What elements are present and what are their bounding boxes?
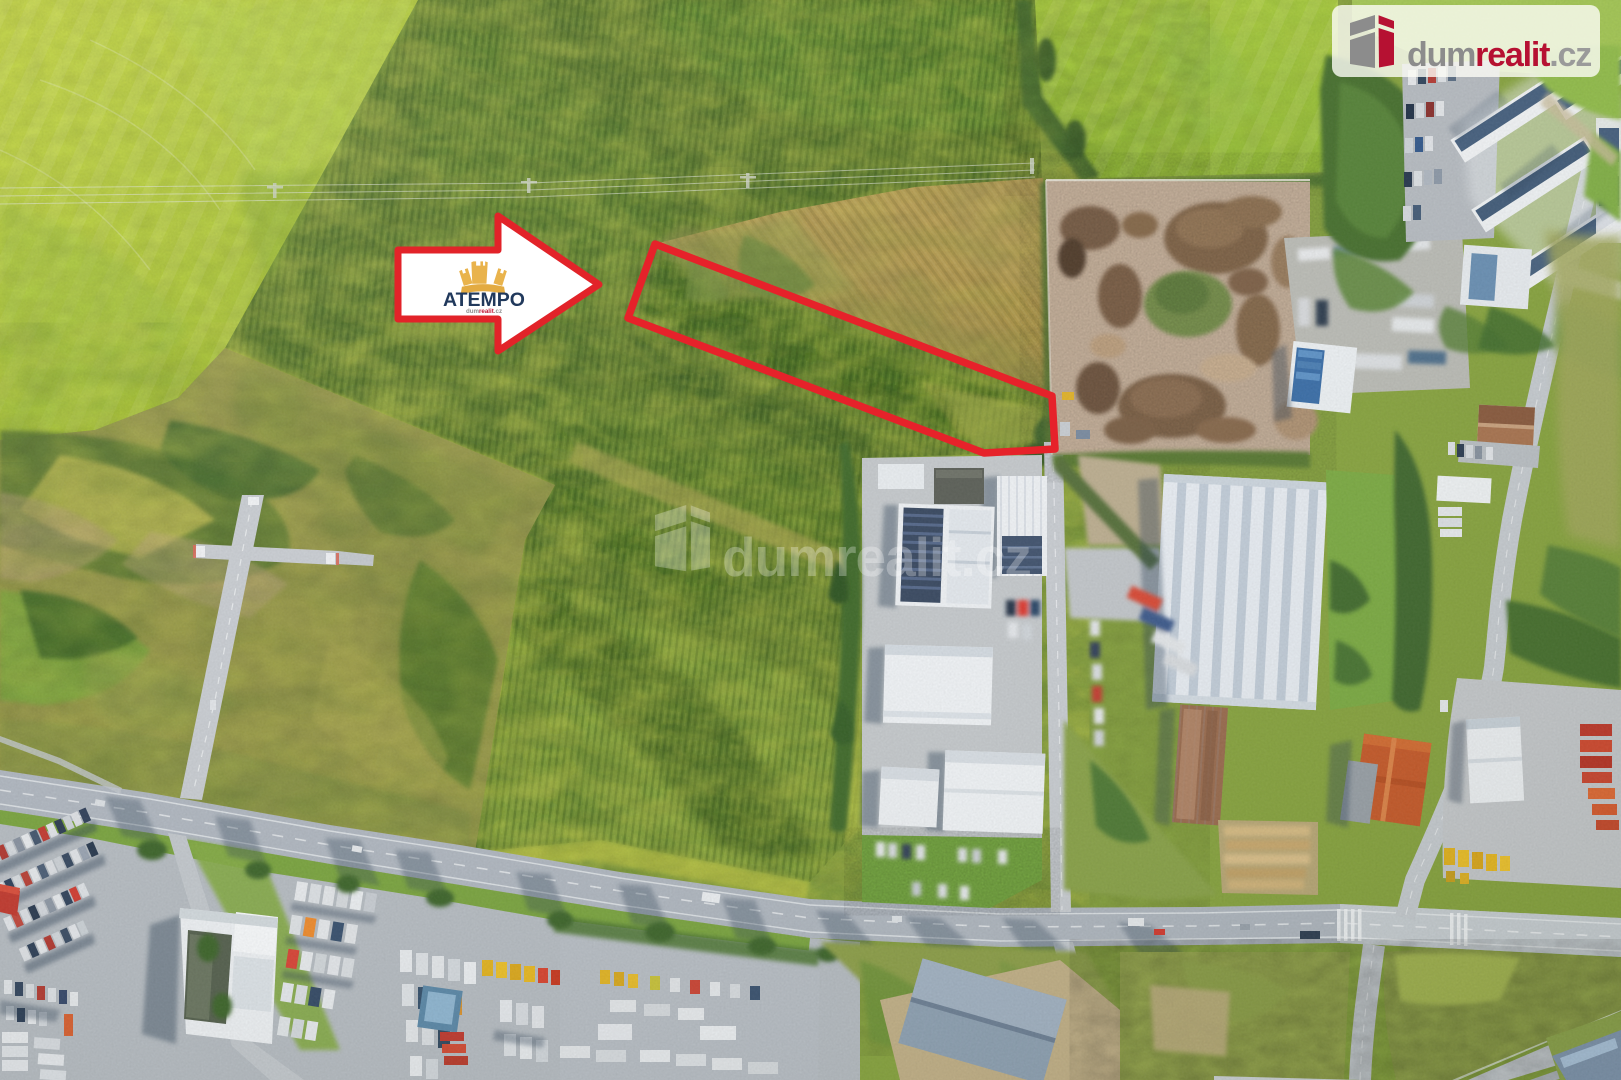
svg-text:dumrealit.cz: dumrealit.cz [466,308,502,315]
svg-text:dumrealit.cz: dumrealit.cz [722,526,1031,588]
svg-text:dumrealit.cz: dumrealit.cz [1407,36,1591,74]
